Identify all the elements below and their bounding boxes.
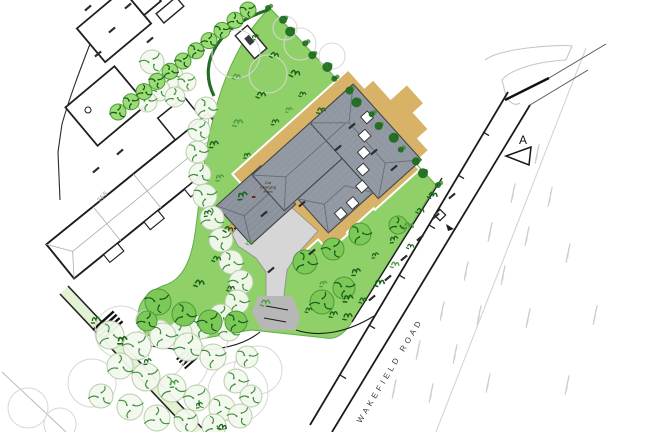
hedge-blob xyxy=(345,87,353,95)
decoration xyxy=(158,374,186,402)
decoration xyxy=(148,100,150,102)
tree-symbol xyxy=(227,404,252,428)
hedge-blob xyxy=(265,5,271,11)
decoration xyxy=(148,61,150,63)
decoration xyxy=(238,320,240,322)
decoration xyxy=(172,98,174,100)
site-plan-canvas: 258 xyxy=(0,0,656,432)
decoration xyxy=(204,110,206,112)
decoration xyxy=(128,100,130,102)
decoration xyxy=(154,80,156,82)
decoration xyxy=(322,238,344,260)
hedge-blob xyxy=(398,147,404,153)
tree-symbol xyxy=(178,73,196,91)
decoration xyxy=(362,232,364,234)
decoration xyxy=(228,404,252,428)
decoration xyxy=(182,310,184,312)
decoration xyxy=(202,175,204,177)
decoration xyxy=(212,422,214,424)
tree-symbol xyxy=(209,228,233,252)
section-marker-label: A xyxy=(519,133,527,147)
decoration xyxy=(210,318,212,320)
decoration xyxy=(318,302,320,304)
decoration xyxy=(130,103,132,105)
decoration xyxy=(228,264,230,266)
decoration xyxy=(211,324,213,326)
svg-text:Point: Point xyxy=(263,189,273,194)
decoration xyxy=(138,348,140,350)
tree-symbol xyxy=(96,321,125,349)
decoration xyxy=(168,72,170,74)
tree-symbol xyxy=(183,385,210,411)
entrance-tarmac xyxy=(252,296,300,330)
hedge-blob xyxy=(308,51,316,59)
decoration xyxy=(113,334,115,336)
decoration xyxy=(192,397,194,399)
decoration xyxy=(144,405,170,431)
tree-symbol xyxy=(193,184,217,208)
hedge-blob xyxy=(279,16,287,24)
decoration xyxy=(159,298,161,300)
decoration xyxy=(117,109,119,111)
decoration xyxy=(219,28,221,30)
decoration xyxy=(152,58,154,60)
decoration xyxy=(132,345,134,347)
decoration xyxy=(343,290,345,292)
hedge-blob xyxy=(389,133,399,143)
tree-symbol xyxy=(236,346,258,368)
decoration xyxy=(181,316,183,318)
decoration xyxy=(199,170,201,172)
tree-symbol xyxy=(136,84,152,100)
decoration xyxy=(346,285,348,287)
decoration xyxy=(234,17,236,19)
tree-symbol xyxy=(227,12,243,28)
decoration xyxy=(204,198,206,200)
decoration xyxy=(161,339,163,341)
decoration xyxy=(199,126,201,128)
tree-symbol xyxy=(239,385,262,407)
tree-symbol xyxy=(197,310,222,334)
decoration xyxy=(126,404,128,406)
decoration xyxy=(221,32,223,34)
decoration xyxy=(195,154,197,156)
tree-symbol xyxy=(110,104,126,120)
hedge-blob xyxy=(412,157,420,165)
decoration xyxy=(223,28,225,30)
tree-symbol xyxy=(172,302,197,326)
decoration xyxy=(233,261,235,263)
decoration xyxy=(187,83,189,85)
decoration xyxy=(293,250,317,274)
tree-symbol xyxy=(173,333,202,361)
decoration xyxy=(247,396,249,398)
decoration xyxy=(186,423,188,425)
decoration xyxy=(141,92,143,94)
decoration xyxy=(188,342,190,344)
decoration xyxy=(97,396,99,398)
decoration xyxy=(225,406,227,408)
decoration xyxy=(168,68,170,70)
tree-symbol xyxy=(132,363,160,391)
decoration xyxy=(189,163,211,185)
decoration xyxy=(199,150,201,152)
decoration xyxy=(329,248,331,250)
decoration xyxy=(248,11,250,13)
decoration xyxy=(182,419,184,421)
tree-symbol xyxy=(214,22,230,38)
decoration xyxy=(154,300,156,302)
decoration xyxy=(239,300,241,302)
decoration xyxy=(310,290,334,314)
decoration xyxy=(146,104,148,106)
decoration xyxy=(242,284,244,286)
decoration xyxy=(225,311,247,333)
decoration xyxy=(209,228,233,252)
decoration xyxy=(216,425,218,427)
hedge-blob xyxy=(435,182,441,188)
decoration xyxy=(249,355,251,357)
decoration xyxy=(148,373,150,375)
tree-symbol xyxy=(195,97,218,119)
decoration xyxy=(249,7,251,9)
decoration xyxy=(146,317,148,319)
decoration xyxy=(174,93,176,95)
tree-symbol xyxy=(174,409,198,432)
decoration xyxy=(197,49,199,51)
decoration xyxy=(183,62,185,64)
decoration xyxy=(204,104,206,106)
decoration xyxy=(145,91,147,93)
decoration xyxy=(234,383,236,385)
decoration xyxy=(141,375,143,377)
decoration xyxy=(214,218,216,220)
decoration xyxy=(132,404,134,406)
decoration xyxy=(175,53,191,69)
decoration xyxy=(334,251,336,253)
decoration xyxy=(160,332,162,334)
decoration xyxy=(241,278,243,280)
decoration xyxy=(194,149,196,151)
decoration xyxy=(245,9,247,11)
decoration xyxy=(171,70,173,72)
decoration xyxy=(357,231,359,233)
hedge-blob xyxy=(302,40,308,46)
decoration xyxy=(119,112,121,114)
decoration xyxy=(200,344,226,370)
tree-symbol xyxy=(240,2,256,18)
decoration xyxy=(194,48,196,50)
decoration xyxy=(196,174,198,176)
decoration xyxy=(206,41,208,43)
decoration xyxy=(143,89,145,91)
tree-symbol xyxy=(321,238,344,260)
decoration xyxy=(209,219,211,221)
decoration xyxy=(186,313,188,315)
decoration xyxy=(184,81,186,83)
manhole xyxy=(85,107,91,113)
decoration xyxy=(107,353,133,379)
decoration xyxy=(232,21,234,23)
decoration xyxy=(243,355,245,357)
tree-symbol xyxy=(117,394,143,420)
decoration xyxy=(153,419,155,421)
site-plan-page: 258 xyxy=(0,0,656,432)
decoration xyxy=(116,367,118,369)
decoration xyxy=(219,404,221,406)
tree-symbol xyxy=(88,384,113,408)
decoration xyxy=(146,380,148,382)
decoration xyxy=(307,261,309,263)
hedge-blob xyxy=(369,111,375,117)
decoration xyxy=(238,379,240,381)
decoration xyxy=(180,60,182,62)
tree-symbol xyxy=(201,33,217,49)
decoration xyxy=(251,392,253,394)
decoration xyxy=(129,410,131,412)
decoration xyxy=(246,359,248,361)
decoration xyxy=(302,264,304,266)
decoration xyxy=(117,394,143,420)
decoration xyxy=(200,132,202,134)
decoration xyxy=(234,324,236,326)
decoration xyxy=(195,130,197,132)
decoration xyxy=(193,184,217,208)
decoration xyxy=(303,258,305,260)
decoration xyxy=(234,299,236,301)
hedge-blob xyxy=(331,76,337,82)
decoration xyxy=(169,390,171,392)
decoration xyxy=(159,418,161,420)
tree-symbol xyxy=(186,141,209,163)
decoration xyxy=(198,400,200,402)
decoration xyxy=(195,97,217,119)
tree-symbol xyxy=(310,290,334,314)
decoration xyxy=(333,245,335,247)
decoration xyxy=(236,415,238,417)
decoration xyxy=(358,236,360,238)
tree-symbol xyxy=(293,250,318,274)
hedge-blob xyxy=(322,62,332,72)
tree-symbol xyxy=(200,344,226,370)
decoration xyxy=(107,331,109,333)
decoration xyxy=(122,366,124,368)
decoration xyxy=(399,225,401,227)
decoration xyxy=(183,348,185,350)
decoration xyxy=(144,321,146,323)
decoration xyxy=(177,97,179,99)
decoration xyxy=(175,387,177,389)
decoration xyxy=(208,107,210,109)
decoration xyxy=(226,331,228,333)
decoration xyxy=(115,112,117,114)
decoration xyxy=(215,354,217,356)
tree-symbol xyxy=(158,374,187,402)
decoration xyxy=(183,58,185,60)
decoration xyxy=(233,319,235,321)
decoration xyxy=(241,412,243,414)
decoration xyxy=(321,298,323,300)
decoration xyxy=(178,329,180,331)
tree-symbol xyxy=(349,223,372,245)
decoration xyxy=(212,360,214,362)
decoration xyxy=(229,258,231,260)
decoration xyxy=(123,94,139,110)
decoration xyxy=(148,322,150,324)
decoration xyxy=(209,354,211,356)
decoration xyxy=(190,349,192,351)
decoration xyxy=(221,242,223,244)
decoration xyxy=(206,321,208,323)
decoration xyxy=(119,362,121,364)
decoration xyxy=(101,392,103,394)
tree-symbol xyxy=(137,311,157,331)
decoration xyxy=(241,418,243,420)
decoration xyxy=(138,342,140,344)
tree-symbol xyxy=(149,73,165,89)
decoration xyxy=(188,79,190,81)
decoration xyxy=(103,397,105,399)
decoration xyxy=(107,337,109,339)
decoration xyxy=(195,52,197,54)
decoration xyxy=(184,385,210,411)
decoration xyxy=(172,302,196,326)
decoration xyxy=(223,317,225,319)
decoration xyxy=(210,214,212,216)
decoration xyxy=(157,83,159,85)
charge-point-mark xyxy=(252,196,255,198)
decoration xyxy=(233,378,235,380)
decoration xyxy=(96,321,124,349)
decoration xyxy=(188,119,210,141)
tree-symbol xyxy=(225,311,248,333)
decoration xyxy=(220,411,222,413)
decoration xyxy=(235,304,237,306)
decoration xyxy=(214,22,230,38)
hedge-blob xyxy=(418,168,428,178)
decoration xyxy=(222,237,224,239)
decoration xyxy=(187,418,189,420)
tree-symbol xyxy=(189,163,211,185)
decoration xyxy=(210,41,212,43)
decoration xyxy=(236,346,258,368)
decoration xyxy=(158,305,160,307)
decoration xyxy=(324,303,326,305)
decoration xyxy=(166,334,168,336)
tree-symbol xyxy=(187,119,210,141)
decoration xyxy=(340,286,342,288)
decoration xyxy=(236,20,238,22)
tree-symbol xyxy=(174,53,191,69)
tree-symbol xyxy=(200,206,224,230)
hedge-blob xyxy=(375,122,383,130)
decoration xyxy=(211,428,213,430)
decoration xyxy=(198,310,222,334)
tree-symbol xyxy=(389,216,407,234)
decoration xyxy=(155,90,157,92)
tree-symbol xyxy=(107,353,133,379)
decoration xyxy=(252,397,254,399)
decoration xyxy=(153,64,155,66)
decoration xyxy=(201,194,203,196)
decoration xyxy=(132,100,134,102)
decoration xyxy=(207,193,209,195)
hedge-blob xyxy=(285,27,295,37)
decoration xyxy=(208,37,210,39)
decoration xyxy=(161,91,163,93)
decoration xyxy=(397,222,399,224)
decoration xyxy=(156,413,158,415)
tree-symbol xyxy=(144,405,170,431)
decoration xyxy=(198,394,200,396)
decoration xyxy=(158,79,160,81)
hedge-blob xyxy=(352,97,362,107)
decoration xyxy=(237,282,239,284)
decoration xyxy=(217,239,219,241)
decoration xyxy=(395,226,397,228)
decoration xyxy=(220,312,222,314)
tree-symbol xyxy=(123,94,139,110)
